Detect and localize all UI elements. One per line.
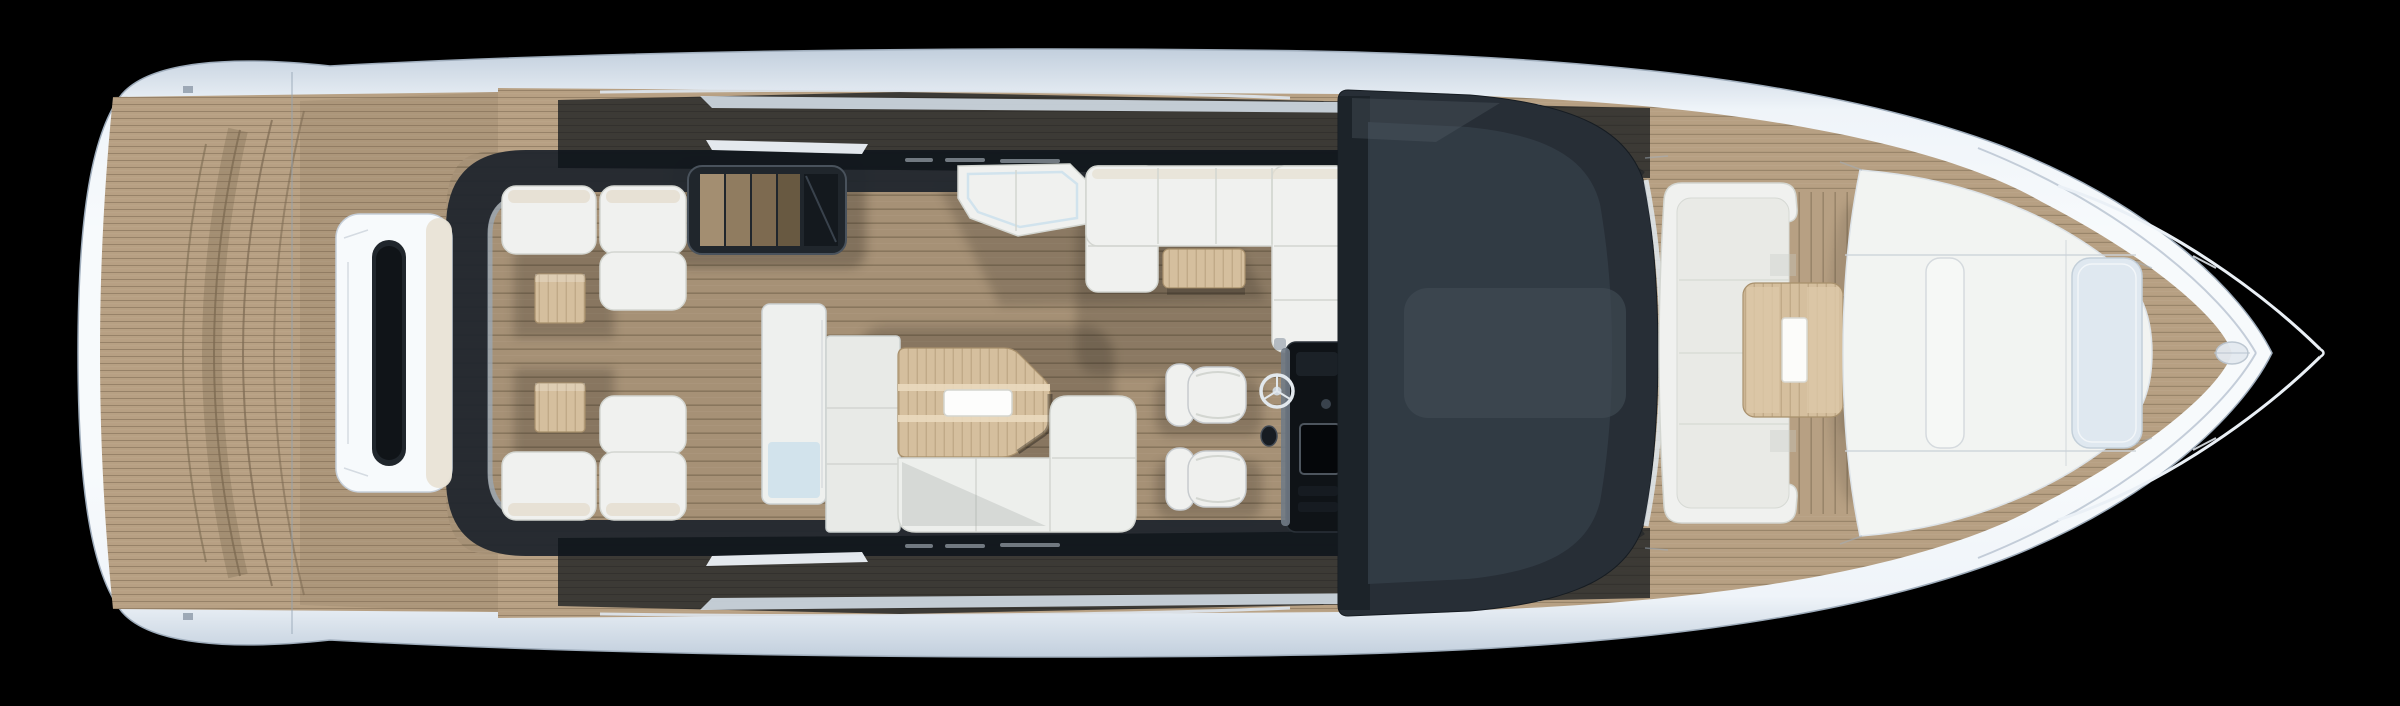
yacht-render: [0, 0, 2400, 706]
stair-step: [778, 174, 800, 246]
stairwell: [688, 166, 846, 254]
sunpad-backrest: [1926, 258, 1964, 448]
helm-screen: [1300, 424, 1340, 474]
transom-console-ivory-edge: [426, 218, 452, 488]
dinette-table-shadow: [1167, 288, 1245, 295]
side-table-highlight: [535, 274, 585, 282]
galley-door-glass: [768, 442, 820, 498]
bow-table-slab: [1747, 287, 1779, 413]
side-table-highlight: [535, 383, 585, 391]
stern-cleat-bottom: [183, 613, 193, 620]
coachroof-center-panel: [1404, 288, 1626, 418]
bow-armrest-shade: [1770, 430, 1796, 452]
stair-step: [726, 174, 750, 246]
back-pad: [606, 190, 680, 203]
bar-sink: [944, 390, 1012, 416]
yacht-deck-plan-canvas: [0, 0, 2400, 706]
bow-table-tray: [1782, 318, 1807, 382]
helm-seat-port: [1166, 364, 1246, 426]
back-pad: [508, 190, 590, 203]
back-pad: [508, 503, 590, 516]
helm-vents: [1296, 352, 1338, 376]
galley-cabinet: [826, 336, 900, 532]
sofa-chaise: [600, 396, 686, 454]
dinette-table: [1163, 249, 1245, 288]
helm-knob: [1321, 399, 1331, 409]
stair-step: [700, 174, 724, 246]
dinette-back-pad: [1092, 169, 1342, 179]
stair-step: [752, 174, 776, 246]
dinette-right-arm: [1272, 166, 1348, 352]
bow-hatch: [2072, 258, 2142, 448]
stern-cleat-top: [183, 86, 193, 93]
transom-console: [336, 214, 452, 492]
back-pad: [606, 503, 680, 516]
pulpit-rail-tip: [2320, 349, 2324, 357]
helm-button-row: [1298, 486, 1338, 496]
helm-seat-starboard: [1166, 448, 1246, 510]
bow-table-slab: [1807, 287, 1839, 413]
helm-button-row: [1298, 502, 1338, 512]
coachroof-dark-column: [1338, 96, 1370, 610]
coachroof: [1338, 90, 1662, 616]
sofa-chaise: [600, 252, 686, 310]
transom-hatch-glass: [376, 246, 402, 460]
throttle-lever: [1261, 426, 1277, 446]
bow-armrest-shade: [1770, 254, 1796, 276]
